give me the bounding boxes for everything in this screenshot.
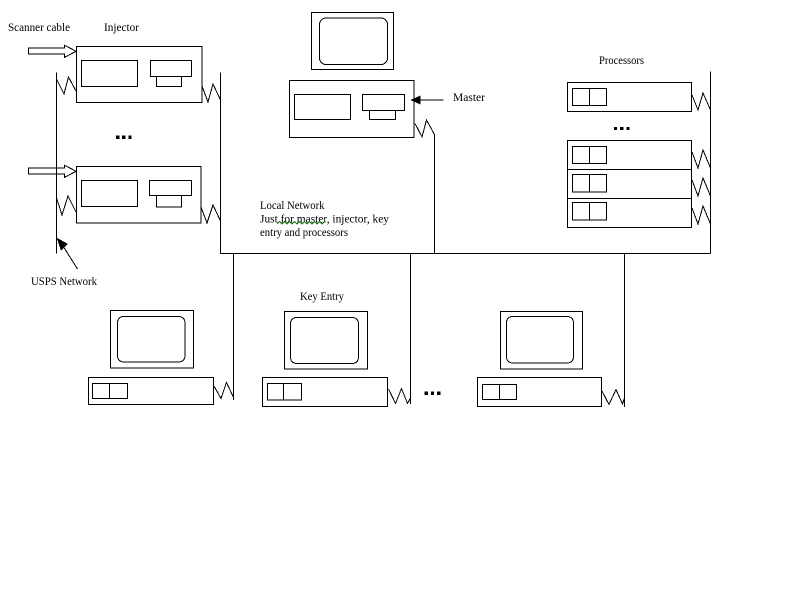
svg-text:USPS Network: USPS Network bbox=[31, 276, 97, 288]
svg-text:Scanner cable: Scanner cable bbox=[8, 22, 70, 34]
svg-text:Processors: Processors bbox=[599, 55, 644, 67]
svg-text:Injector: Injector bbox=[104, 22, 139, 34]
svg-text:entry and processors: entry and processors bbox=[260, 227, 348, 239]
svg-text:Local Network: Local Network bbox=[260, 200, 325, 212]
svg-text:Just for master, injector, key: Just for master, injector, key bbox=[260, 214, 389, 226]
svg-text:Key Entry: Key Entry bbox=[300, 291, 344, 303]
svg-text:Master: Master bbox=[453, 92, 485, 104]
